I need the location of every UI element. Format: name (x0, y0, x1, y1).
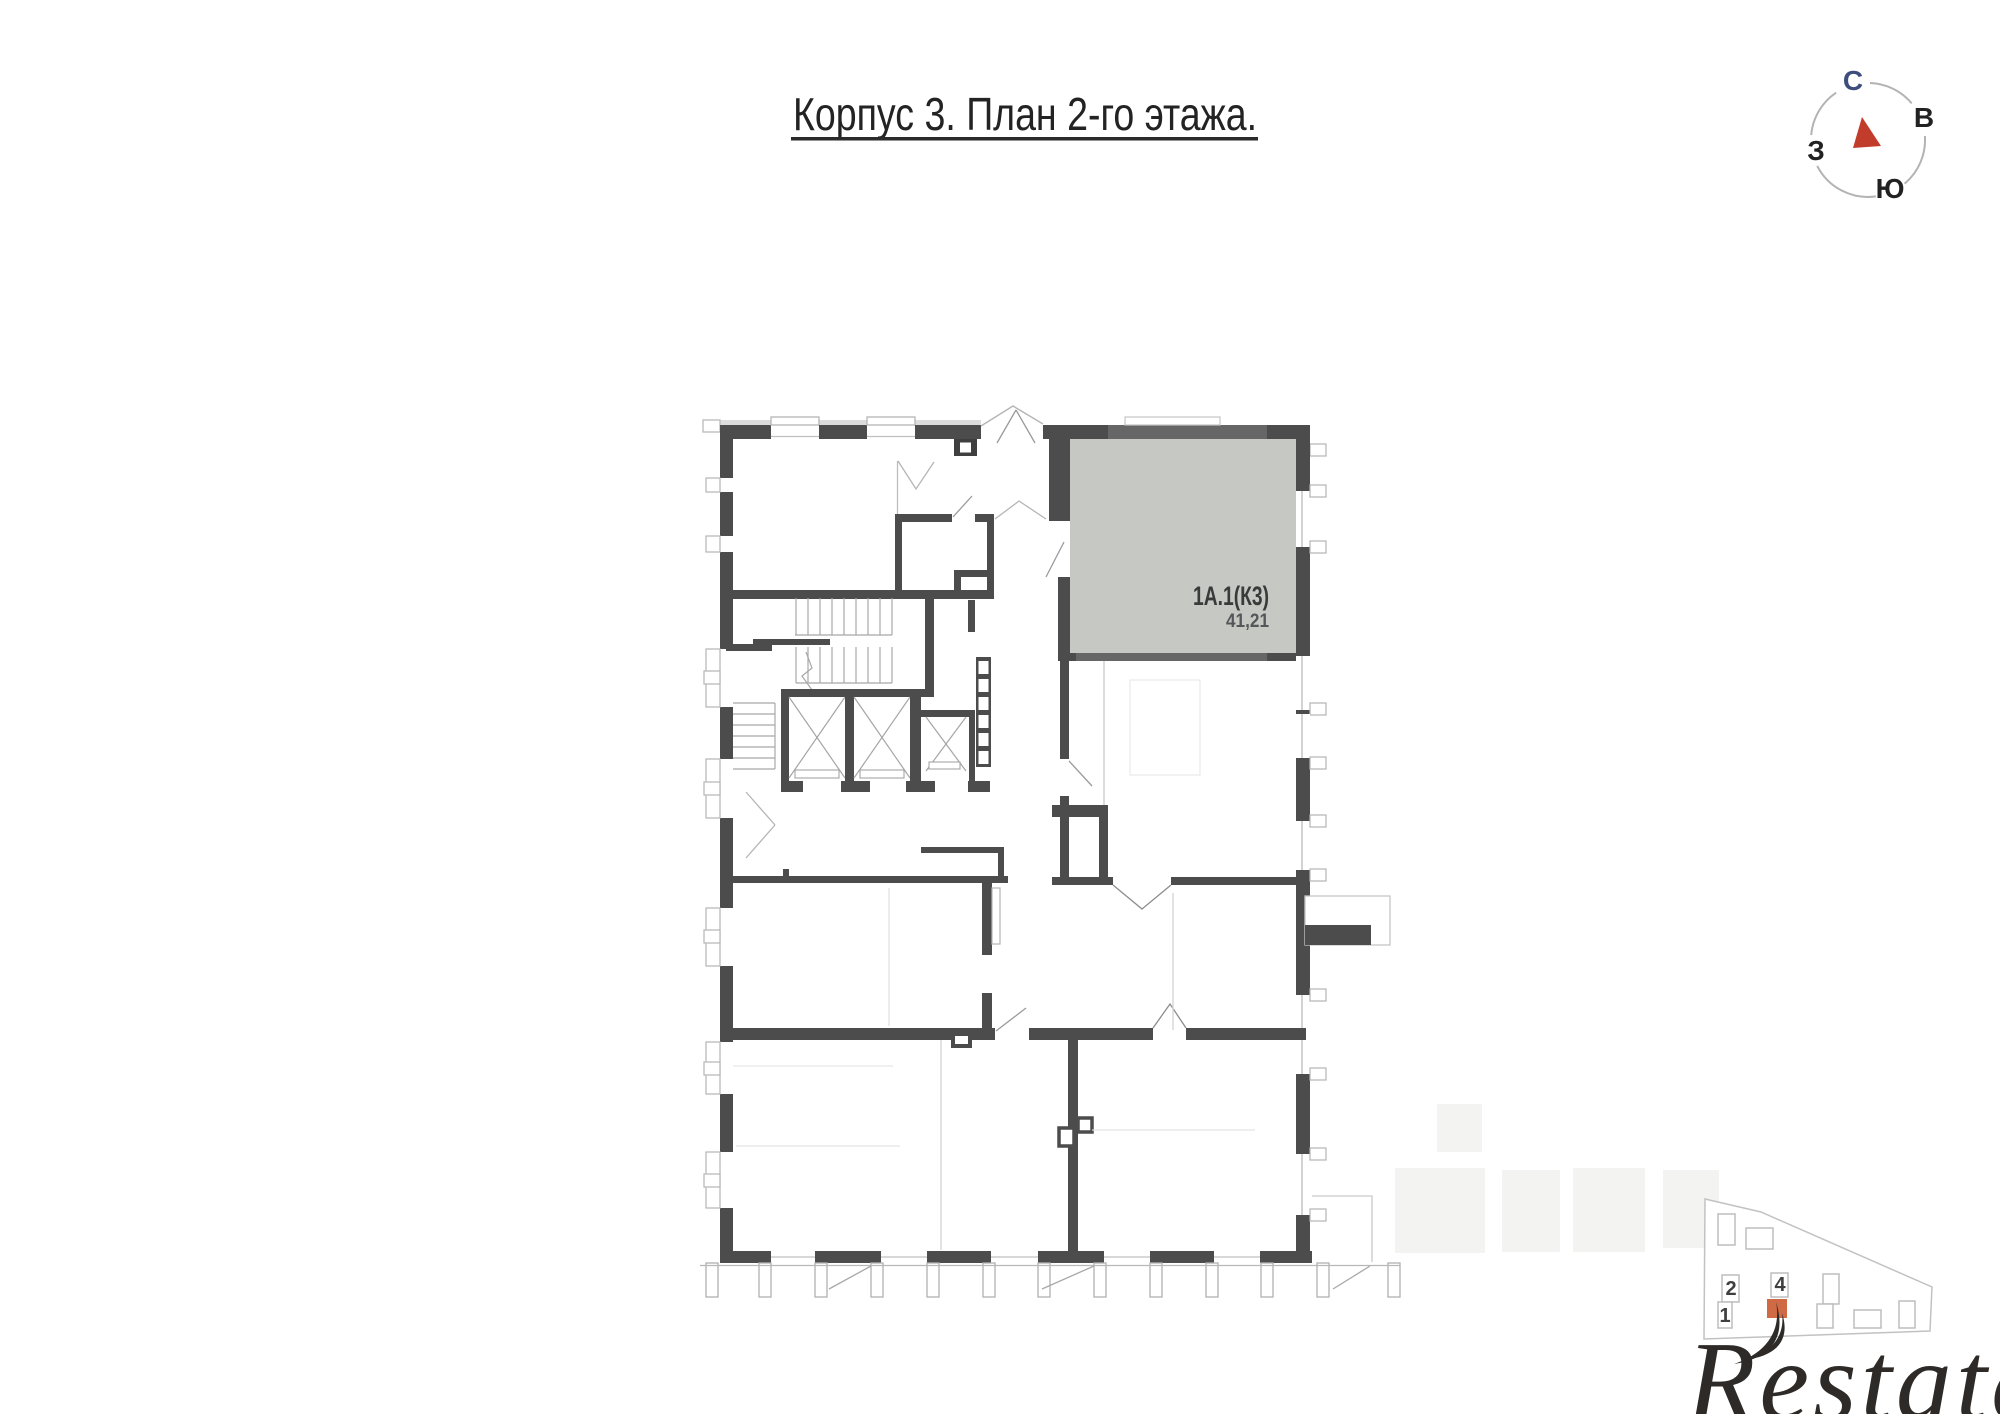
svg-text:4: 4 (1774, 1274, 1786, 1296)
svg-text:С: С (1843, 65, 1863, 96)
svg-text:2: 2 (1725, 1278, 1736, 1300)
svg-text:В: В (1914, 102, 1934, 133)
svg-text:41,21: 41,21 (1226, 611, 1269, 632)
svg-text:З: З (1807, 135, 1825, 166)
svg-text:Корпус 3. План 2-го этажа.: Корпус 3. План 2-го этажа. (793, 88, 1257, 140)
svg-text:Restate: Restate (1686, 1320, 2000, 1414)
svg-text:Ю: Ю (1876, 173, 1905, 204)
svg-text:1А.1(К3): 1А.1(К3) (1193, 581, 1269, 611)
